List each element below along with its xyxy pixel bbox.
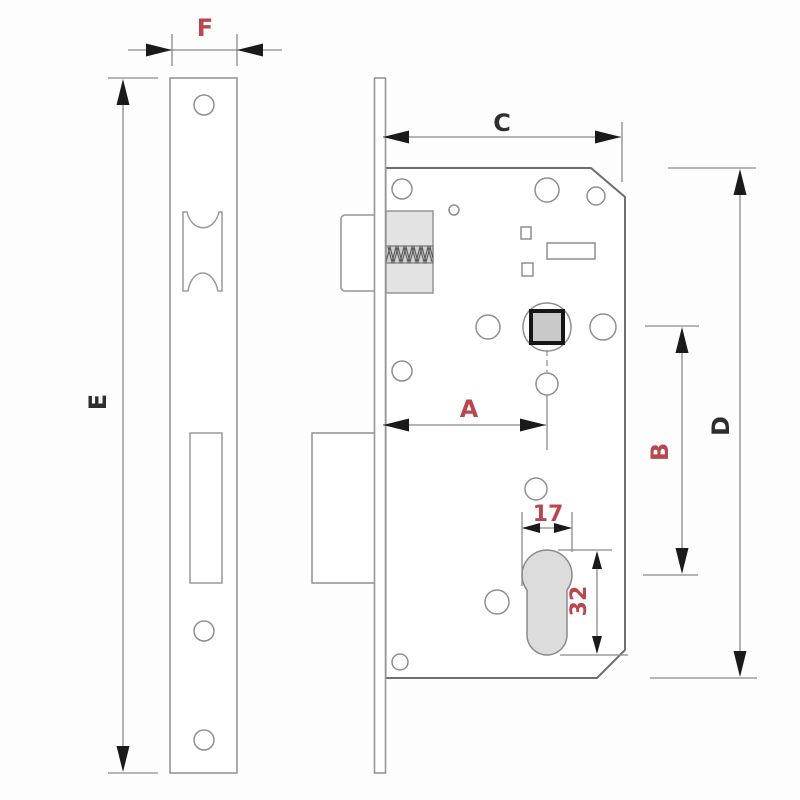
dim-label-d: D bbox=[707, 416, 735, 436]
arrowhead bbox=[676, 327, 689, 353]
dimension-d: D bbox=[650, 168, 757, 678]
dim-label-c: C bbox=[493, 109, 511, 137]
arrowhead bbox=[146, 44, 172, 57]
arrowhead bbox=[595, 131, 621, 144]
arrowhead bbox=[676, 548, 689, 574]
arrowhead bbox=[734, 169, 747, 195]
dimension-b: B bbox=[643, 326, 699, 575]
arrowhead bbox=[734, 651, 747, 677]
spindle-square-hole bbox=[531, 311, 563, 343]
deadbolt-cutout bbox=[190, 433, 222, 583]
dim-label-32: 32 bbox=[567, 586, 592, 617]
dimension-f: F bbox=[128, 14, 282, 66]
dimension-e: E bbox=[84, 78, 158, 773]
strike-plate bbox=[170, 78, 237, 773]
arrowhead bbox=[383, 131, 409, 144]
arrowhead bbox=[117, 79, 130, 105]
dim-label-e: E bbox=[84, 394, 112, 410]
euro-cylinder-hole bbox=[522, 550, 572, 655]
arrowhead bbox=[117, 746, 130, 772]
dim-label-f: F bbox=[197, 14, 213, 42]
deadbolt bbox=[312, 433, 378, 583]
lock-technical-drawing: F E C D B A bbox=[0, 0, 800, 800]
strike-plate-view bbox=[170, 78, 237, 773]
dim-label-17: 17 bbox=[533, 502, 564, 527]
arrowhead bbox=[237, 44, 263, 57]
latch-bolt bbox=[341, 215, 378, 291]
dim-label-b: B bbox=[646, 443, 674, 461]
dim-label-a: A bbox=[460, 395, 479, 423]
